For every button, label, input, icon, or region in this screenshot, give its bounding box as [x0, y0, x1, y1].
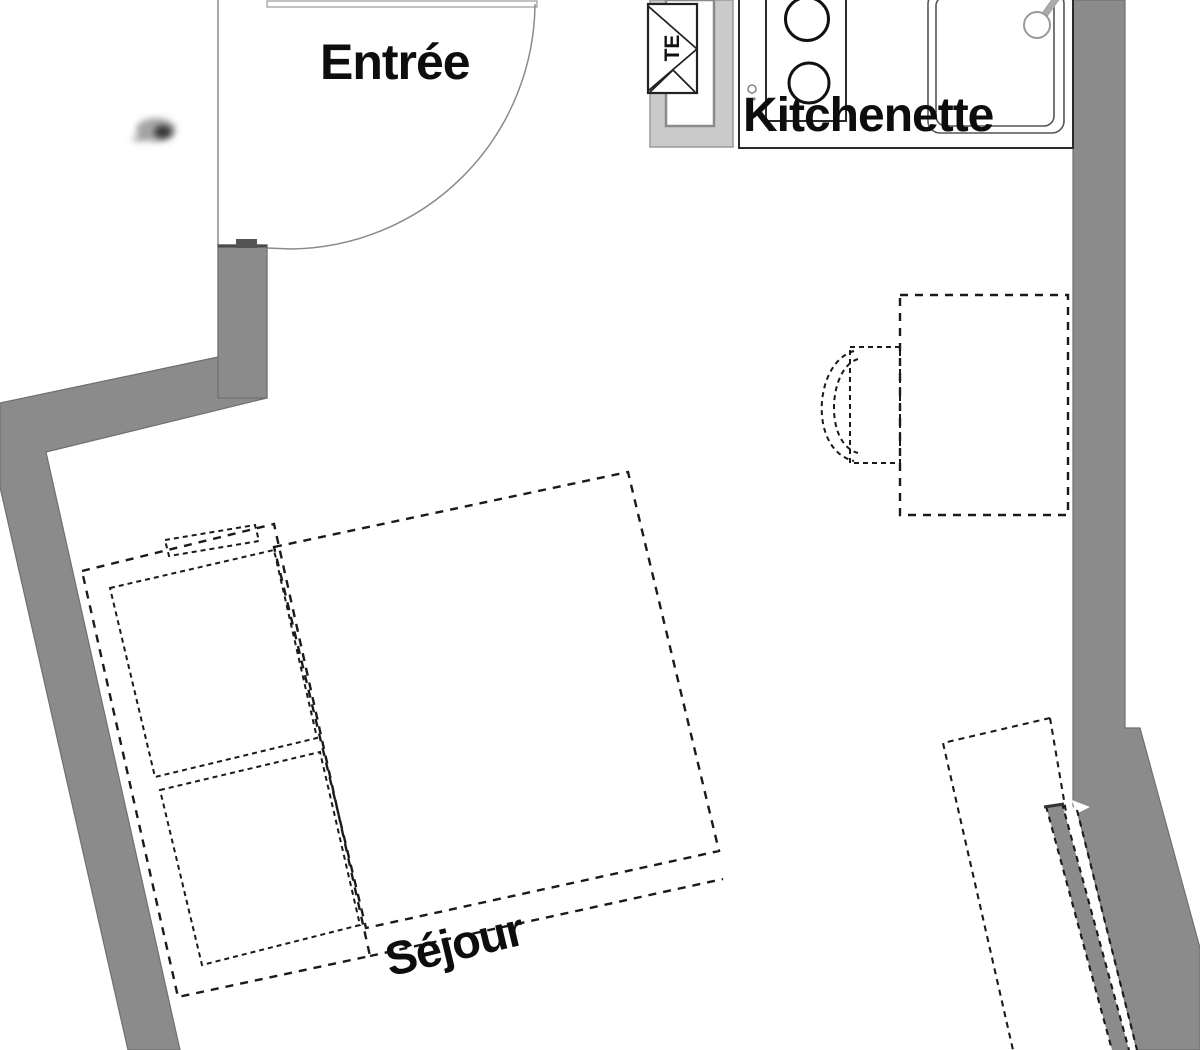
door-hinge-post: [218, 245, 267, 398]
room-label-kitchenette: Kitchenette: [743, 92, 993, 140]
dining-table: [900, 295, 1068, 515]
door-post-notch: [236, 239, 257, 248]
chair-back-inner: [834, 359, 858, 453]
floor-plan: Entrée Kitchenette Séjour TE: [0, 0, 1200, 1050]
electrical-panel-label: TE: [658, 20, 688, 76]
bed-pillow-top: [110, 550, 317, 777]
floor-plan-drawing: [0, 0, 1200, 1050]
faucet-base: [1024, 12, 1050, 38]
door-frame: [267, 1, 537, 7]
dining-set: [822, 295, 1068, 515]
stove-burner-top: [786, 0, 829, 41]
bed-mattress: [274, 472, 719, 928]
smudge-artifact: [132, 118, 176, 142]
door-threshold-line: [267, 248, 291, 249]
double-bed: [82, 472, 723, 997]
partition-zone-outline: [943, 718, 1050, 1050]
partition-zone-right-edge: [1050, 718, 1066, 812]
bed-headboard-detail: [165, 525, 259, 556]
right-wall: [1073, 0, 1200, 1050]
room-label-entree: Entrée: [320, 37, 470, 87]
walls: [0, 0, 1200, 1050]
chair-seat: [850, 347, 900, 463]
